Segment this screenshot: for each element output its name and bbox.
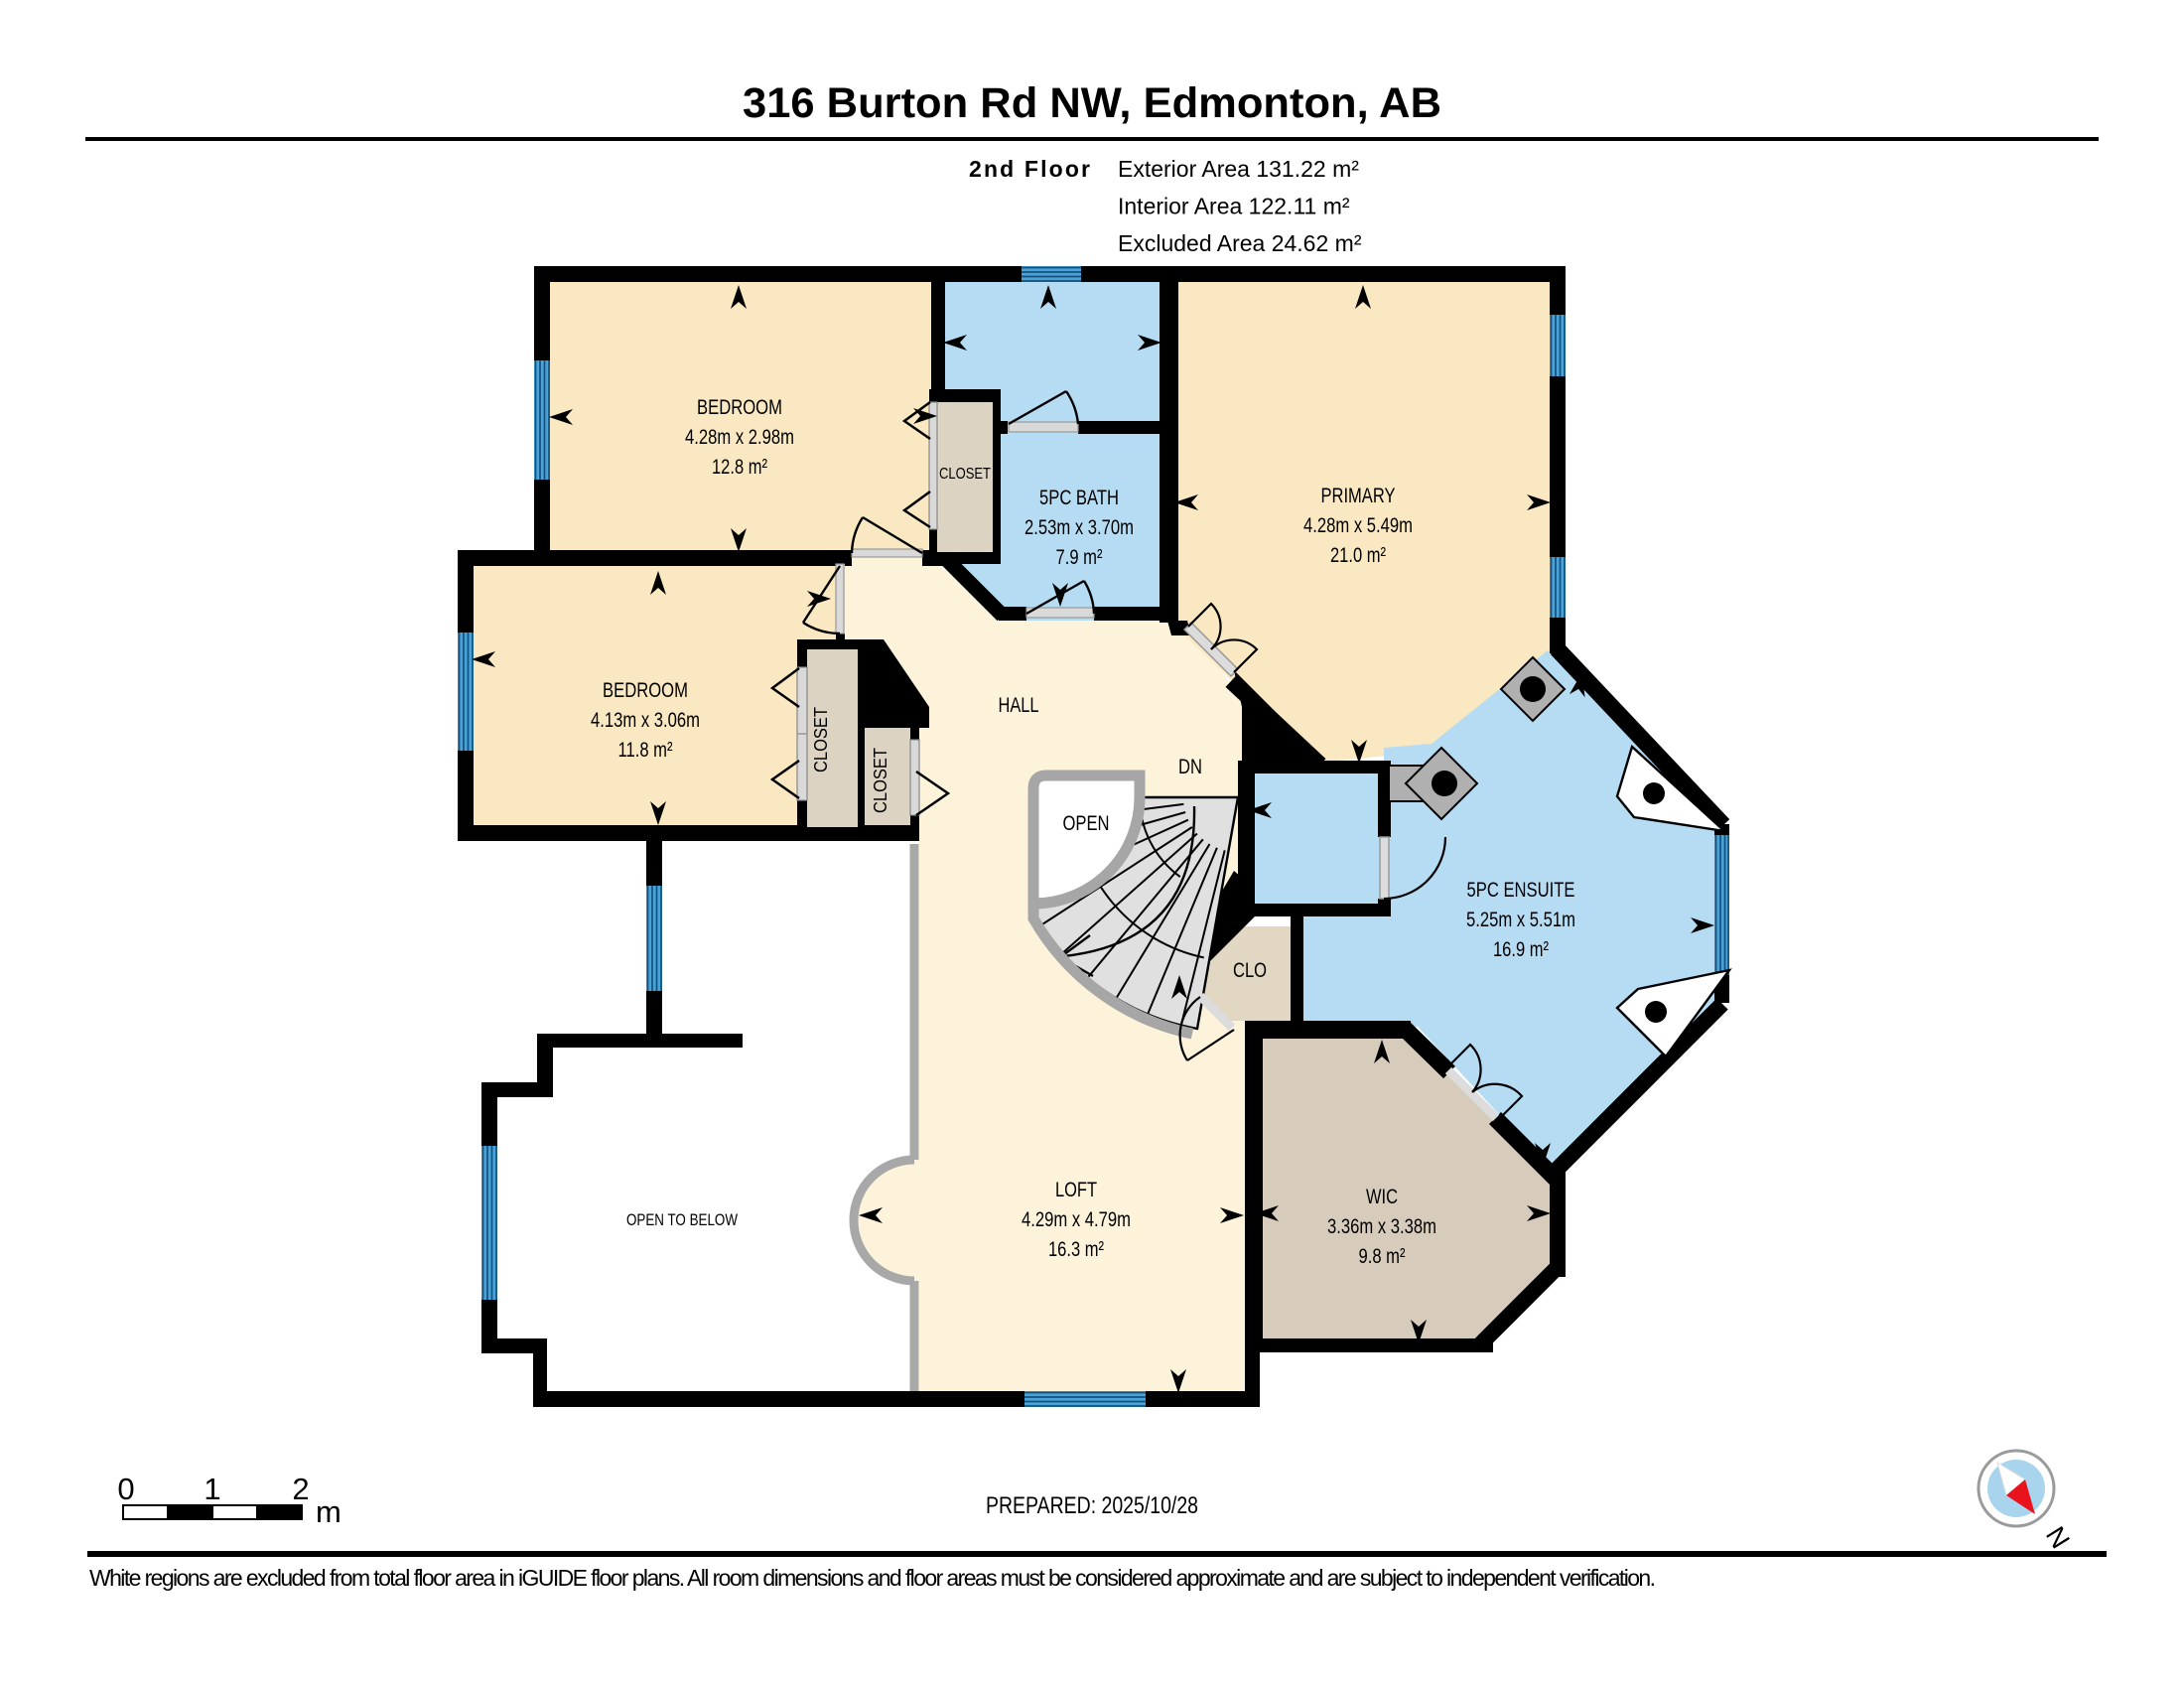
svg-text:BEDROOM: BEDROOM <box>603 679 688 702</box>
svg-text:3.36m x 3.38m: 3.36m x 3.38m <box>1327 1215 1436 1238</box>
svg-text:White regions are excluded fro: White regions are excluded from total fl… <box>89 1565 1656 1591</box>
svg-text:0: 0 <box>117 1472 134 1506</box>
svg-text:CLO: CLO <box>1233 959 1267 982</box>
svg-text:CLOSET: CLOSET <box>939 466 991 483</box>
svg-text:4.13m x 3.06m: 4.13m x 3.06m <box>591 709 700 732</box>
svg-text:5.25m x 5.51m: 5.25m x 5.51m <box>1466 909 1575 931</box>
svg-text:316 Burton Rd NW, Edmonton, AB: 316 Burton Rd NW, Edmonton, AB <box>743 79 1441 127</box>
svg-text:4.28m x 5.49m: 4.28m x 5.49m <box>1303 514 1413 537</box>
svg-text:PREPARED: 2025/10/28: PREPARED: 2025/10/28 <box>986 1492 1198 1519</box>
svg-text:DN: DN <box>1178 756 1202 778</box>
svg-text:PRIMARY: PRIMARY <box>1321 485 1396 507</box>
svg-text:16.9 m²: 16.9 m² <box>1493 938 1549 961</box>
svg-text:16.3 m²: 16.3 m² <box>1048 1238 1104 1261</box>
svg-text:CLOSET: CLOSET <box>811 707 831 773</box>
svg-text:Excluded Area 24.62 m²: Excluded Area 24.62 m² <box>1118 230 1362 256</box>
svg-text:7.9 m²: 7.9 m² <box>1056 546 1103 569</box>
svg-text:Interior Area 122.11 m²: Interior Area 122.11 m² <box>1118 194 1350 219</box>
svg-text:1: 1 <box>204 1472 220 1506</box>
svg-text:4.28m x 2.98m: 4.28m x 2.98m <box>685 426 794 449</box>
svg-text:21.0 m²: 21.0 m² <box>1330 544 1386 567</box>
svg-text:11.8 m²: 11.8 m² <box>618 739 673 762</box>
svg-text:9.8 m²: 9.8 m² <box>1359 1245 1406 1268</box>
svg-text:LOFT: LOFT <box>1055 1179 1097 1201</box>
svg-text:Exterior Area 131.22 m²: Exterior Area 131.22 m² <box>1118 156 1359 182</box>
svg-text:OPEN TO BELOW: OPEN TO BELOW <box>626 1210 738 1229</box>
svg-text:WIC: WIC <box>1366 1186 1398 1208</box>
svg-text:m: m <box>316 1494 341 1529</box>
svg-text:5PC ENSUITE: 5PC ENSUITE <box>1467 879 1575 902</box>
svg-text:OPEN: OPEN <box>1063 812 1110 835</box>
svg-text:2.53m x 3.70m: 2.53m x 3.70m <box>1024 516 1134 539</box>
svg-text:HALL: HALL <box>999 694 1039 717</box>
svg-text:2: 2 <box>292 1472 309 1506</box>
svg-text:5PC BATH: 5PC BATH <box>1039 487 1119 509</box>
svg-text:4.29m x 4.79m: 4.29m x 4.79m <box>1022 1208 1131 1231</box>
svg-text:12.8 m²: 12.8 m² <box>712 456 767 479</box>
svg-text:2nd Floor: 2nd Floor <box>969 156 1090 182</box>
svg-text:BEDROOM: BEDROOM <box>697 396 782 419</box>
svg-text:CLOSET: CLOSET <box>871 748 890 813</box>
